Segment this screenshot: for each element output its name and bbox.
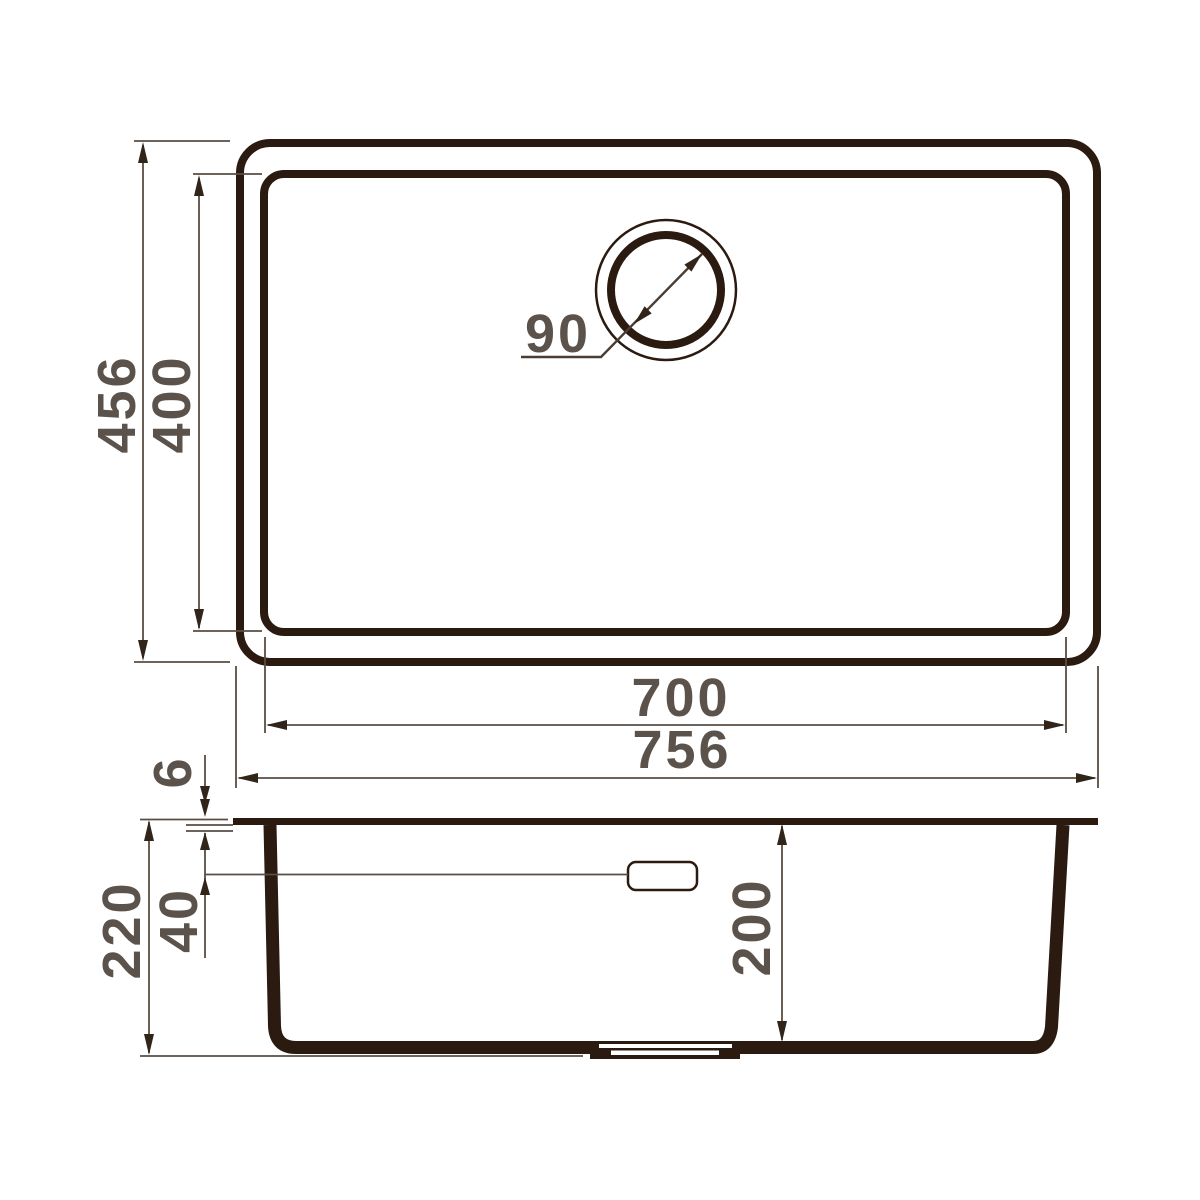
bowl-section-outline: [270, 825, 1063, 1048]
rim-profile: [233, 818, 1098, 825]
dimension-overflow-offset: 40: [149, 832, 210, 958]
arrowhead-down-icon: [194, 609, 204, 630]
rim-thickness-label: 6: [143, 755, 203, 788]
arrowhead-up-icon: [194, 175, 204, 196]
arrowhead-up-icon: [200, 832, 210, 850]
drawing-canvas: 90 456 400 700: [0, 0, 1200, 1200]
arrowhead-right-icon: [1044, 720, 1065, 730]
drain-fitting-slot: [611, 1051, 719, 1056]
arrowhead-left-icon: [237, 773, 258, 783]
top-view: 90 456 400 700: [87, 141, 1098, 788]
dimension-bowl-depth: 200: [722, 824, 787, 1042]
bowl-length-label: 700: [631, 668, 730, 728]
bowl-width-label: 400: [142, 354, 202, 453]
overflow-offset-label: 40: [149, 887, 209, 953]
drain-diameter-label: 90: [525, 304, 591, 364]
bowl-depth-label: 200: [722, 877, 782, 976]
dimension-bowl-length: 700: [265, 637, 1066, 733]
drain-fitting: [590, 1041, 740, 1059]
overall-length-label: 756: [632, 720, 731, 780]
arrowhead-down-icon: [144, 1034, 154, 1055]
arrowhead-down-icon: [777, 1021, 787, 1042]
side-section-view: 220 6 40 200: [92, 755, 1098, 1059]
overall-width-label: 456: [87, 354, 147, 453]
arrowhead-right-icon: [1076, 773, 1097, 783]
arrowhead-up-icon: [777, 824, 787, 845]
arrowhead-up-icon: [138, 142, 148, 163]
overflow-outline: [628, 862, 697, 890]
arrowhead-up-icon: [144, 820, 154, 841]
arrowhead-down-icon: [138, 640, 148, 661]
overall-depth-label: 220: [92, 880, 152, 979]
sink-dimension-drawing: 90 456 400 700: [0, 0, 1200, 1200]
drain-fitting-slot: [599, 1044, 732, 1048]
arrowhead-left-icon: [266, 720, 287, 730]
bowl-inner-outline: [264, 174, 1066, 632]
